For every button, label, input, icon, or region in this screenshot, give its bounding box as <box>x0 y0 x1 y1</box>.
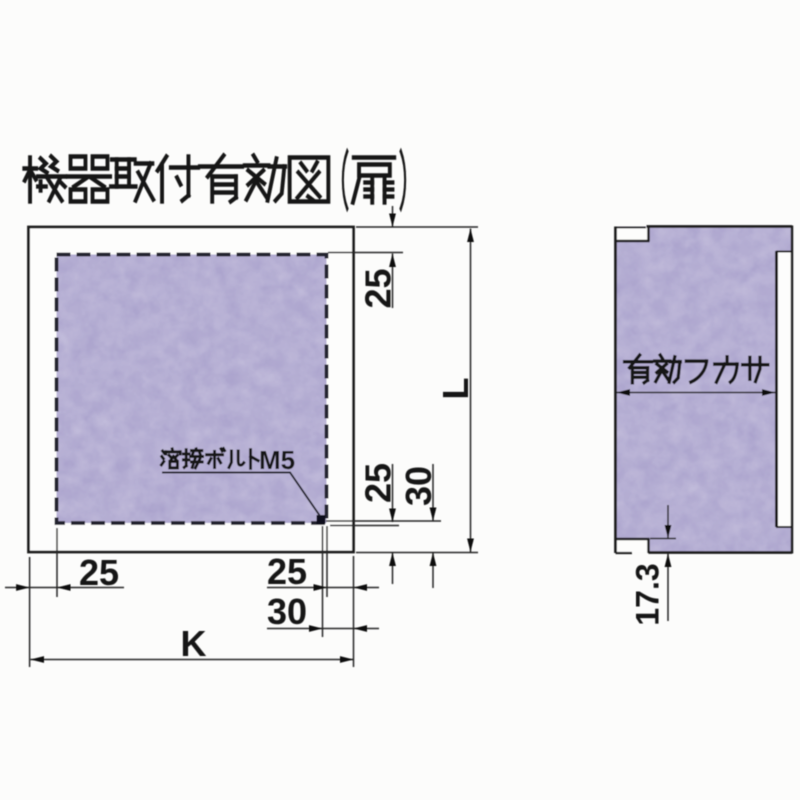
svg-text:25: 25 <box>267 551 307 592</box>
svg-text:30: 30 <box>267 591 307 632</box>
svg-text:M5: M5 <box>259 445 295 475</box>
svg-text:25: 25 <box>79 552 119 593</box>
svg-text:L: L <box>435 378 476 400</box>
svg-text:17.3: 17.3 <box>630 563 666 625</box>
svg-text:30: 30 <box>398 466 439 506</box>
svg-text:25: 25 <box>358 268 399 308</box>
svg-text:K: K <box>181 623 207 664</box>
svg-text:25: 25 <box>358 463 399 503</box>
